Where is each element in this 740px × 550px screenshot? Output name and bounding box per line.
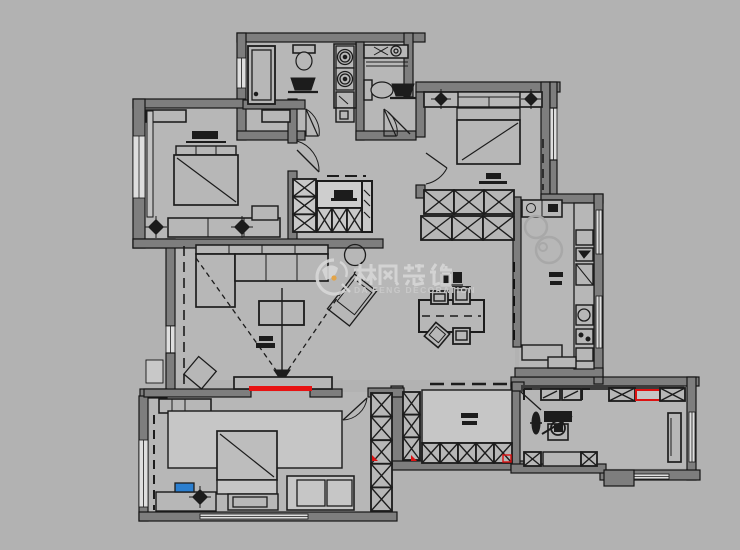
svg-text:DA FENG DECORATION: DA FENG DECORATION [354, 285, 476, 295]
